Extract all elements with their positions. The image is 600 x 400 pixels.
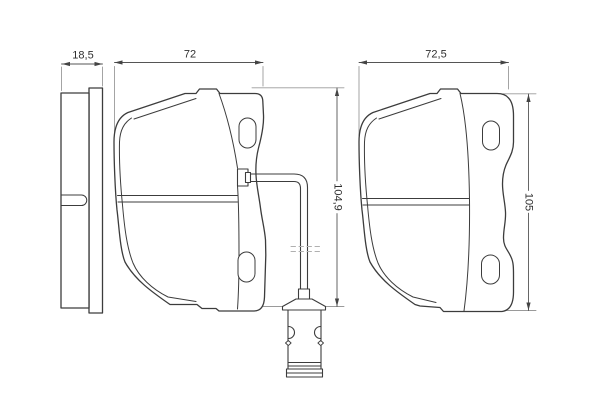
wire-break-marks [291, 247, 322, 252]
connector-cap [283, 299, 326, 310]
rivet-hole-bottom-2 [482, 255, 500, 284]
rivet-hole-bottom-1 [238, 252, 255, 282]
side-view [61, 88, 103, 313]
dim-label-thickness: 18,5 [70, 51, 95, 62]
dim-label-height-2: 105 [523, 191, 534, 213]
dim-label-height-1: 104,9 [332, 181, 343, 213]
sensor-clip [246, 173, 251, 183]
connector-plug [283, 289, 326, 377]
dim-label-width-1: 72 [182, 50, 198, 61]
drawing-canvas: 18,5 72 72,5 104,9 105 [0, 0, 600, 400]
rivet-hole-top-1 [239, 118, 256, 148]
rivet-hole-top-2 [483, 121, 500, 150]
connector-neck [299, 289, 310, 299]
pad-front-view-1 [114, 89, 266, 311]
friction-material-side [61, 93, 89, 308]
dim-label-width-2: 72,5 [423, 50, 448, 61]
pad-front-view-2 [359, 89, 514, 312]
connector-body [288, 310, 321, 369]
backing-plate-side [89, 88, 103, 313]
